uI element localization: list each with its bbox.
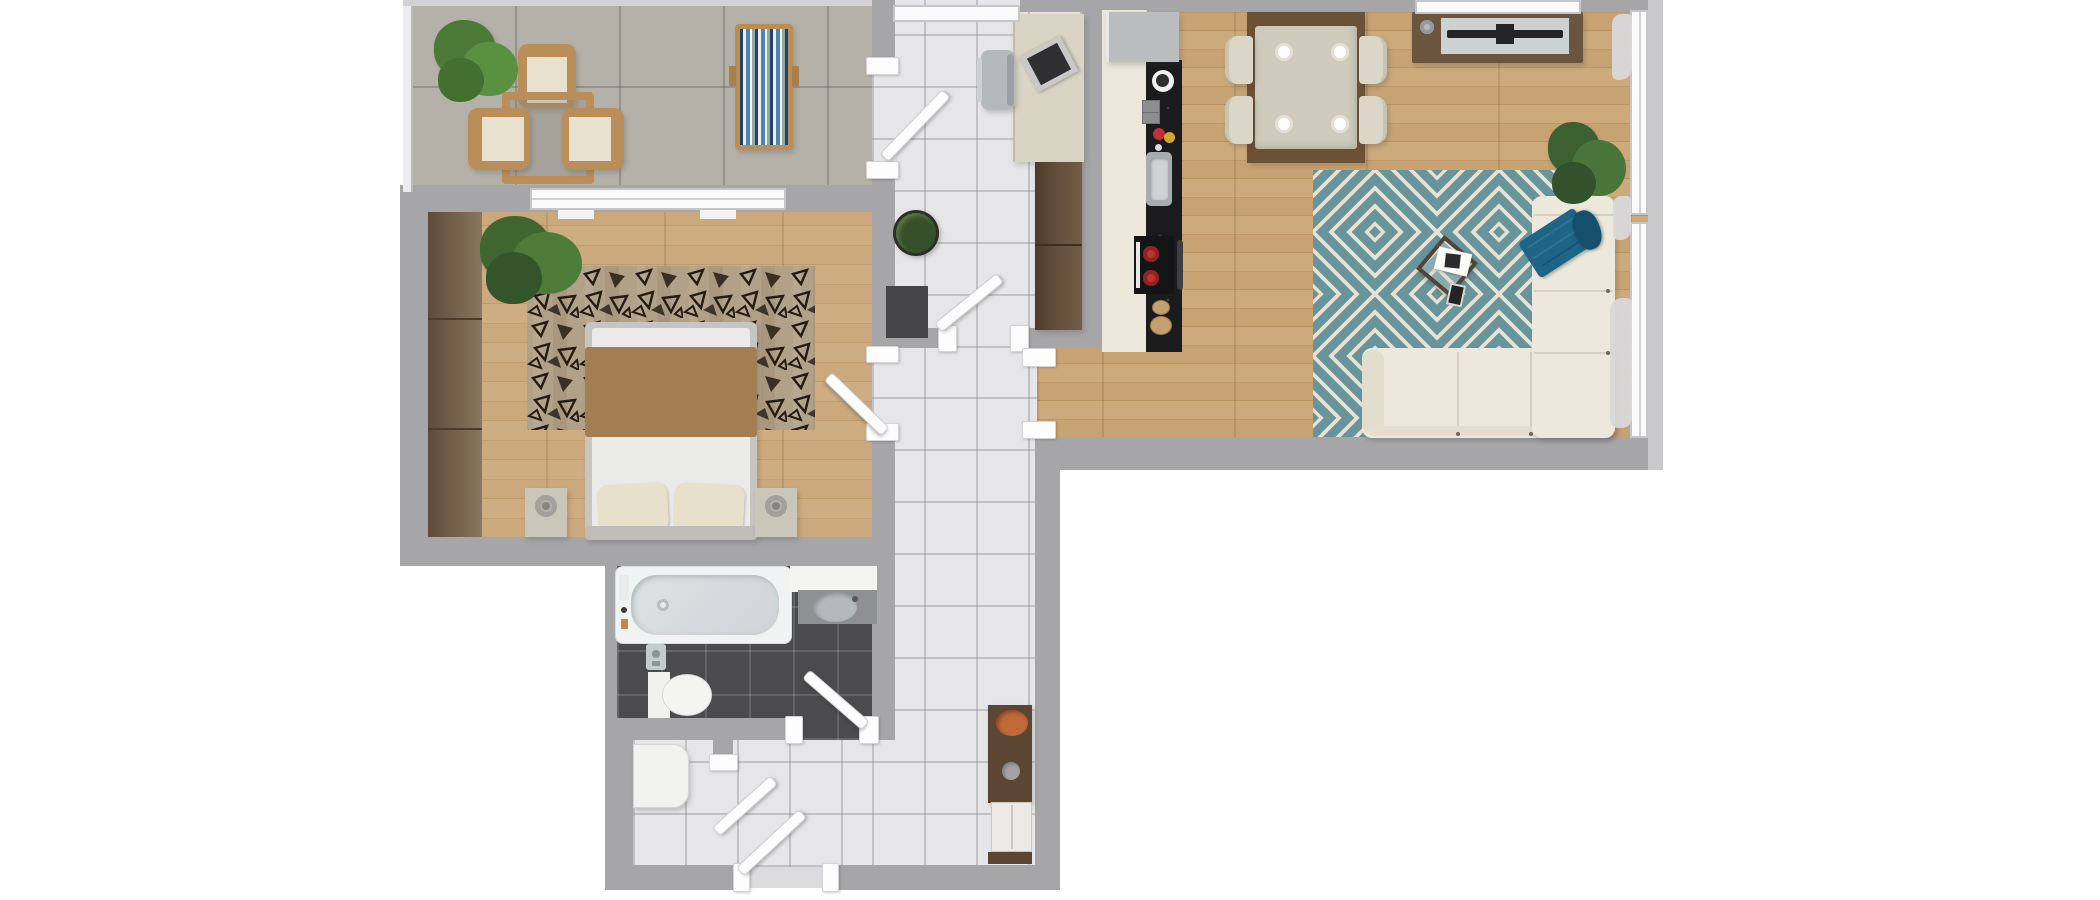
dining-chair: [1225, 36, 1253, 84]
toilet-bowl: [662, 674, 712, 716]
living-doorway-post: [1022, 421, 1056, 439]
bedroom-plant-leaves: [486, 252, 542, 304]
sofa-armrest: [1362, 350, 1384, 434]
wardrobe-divider: [428, 428, 482, 430]
bathtub-drain: [657, 599, 669, 611]
washing-machine: [633, 744, 689, 808]
wall-kitchen: [1082, 0, 1102, 348]
bedroom-curtain-tab: [700, 210, 736, 219]
cutting-board: [1150, 316, 1172, 335]
hall-console-shelf: [988, 852, 1032, 864]
laundry-door-post: [709, 754, 738, 771]
wall-outer-right: [1648, 0, 1663, 470]
lemon: [1164, 132, 1175, 143]
dining-chair: [1225, 96, 1253, 144]
vanity-counter-top: [790, 566, 877, 592]
spice-jars: [1142, 100, 1160, 124]
wall-living-bottom: [1035, 437, 1663, 470]
wardrobe: [428, 212, 482, 537]
door-knob-dish: [1002, 762, 1020, 780]
bathtub-basin: [631, 575, 779, 635]
cutting-board: [1152, 300, 1170, 315]
curtain: [1610, 298, 1632, 428]
wall-bedroom-bottom: [400, 537, 895, 566]
oven-handle: [1177, 240, 1183, 290]
wall-taps: [646, 644, 666, 670]
doormat: [886, 286, 928, 338]
bed-blanket: [585, 347, 757, 437]
balcony-railing-left: [403, 0, 413, 192]
living-doorway-post: [1022, 348, 1056, 367]
wall-hall-stub-right: [1024, 328, 1102, 348]
sun-lounger: [735, 24, 793, 150]
wall-hall-right: [1035, 438, 1060, 890]
balcony-plant-leaves: [438, 58, 484, 102]
vanity-counter: [798, 590, 877, 624]
refrigerator: [1106, 12, 1179, 62]
table-lamp-left: [535, 495, 557, 517]
tv-screen: [1496, 24, 1514, 44]
burner: [1143, 270, 1159, 286]
kitchen-sink: [1146, 152, 1172, 206]
basin-tap: [852, 596, 858, 602]
bedroom-door-post: [866, 346, 899, 363]
living-top-window: [1415, 0, 1581, 14]
bathtub: [615, 566, 792, 644]
plate: [1331, 43, 1349, 61]
plate: [1275, 43, 1293, 61]
plate: [1331, 115, 1349, 133]
bath-faucet: [619, 575, 629, 601]
balcony-railing-top: [403, 0, 872, 6]
curtain: [1612, 14, 1632, 80]
hall-plant: [896, 213, 936, 253]
cooktop: [1134, 236, 1174, 294]
bedroom-curtain-tab: [558, 210, 594, 219]
table-lamp-right: [765, 495, 787, 517]
entrance-door-post: [822, 863, 839, 892]
headboard: [585, 526, 757, 540]
entrance-gap: [747, 867, 823, 888]
speaker: [1420, 20, 1434, 34]
balcony-door-post: [866, 57, 899, 75]
sink-faucet: [1155, 144, 1162, 151]
curtain: [1613, 196, 1631, 240]
double-bed: [585, 322, 757, 540]
balcony-chair-right: [562, 108, 624, 170]
bedroom-window: [530, 188, 786, 210]
hall-bench: [991, 802, 1032, 852]
plate: [1275, 115, 1293, 133]
living-right-window-upper: [1630, 10, 1648, 215]
hall-tall-cabinet: [1035, 162, 1082, 330]
entry-window: [893, 5, 1020, 22]
wall-bedroom-left: [400, 185, 428, 566]
lounger-armrest: [729, 66, 736, 86]
floor-plan-canvas: [0, 0, 2100, 900]
chair-cushion: [482, 117, 524, 161]
balcony-door-post: [866, 161, 899, 179]
wardrobe-divider: [428, 318, 482, 320]
wall-bath-bottom: [605, 718, 801, 740]
desk: [1013, 14, 1084, 162]
bathroom-door-post: [785, 716, 803, 744]
living-plant-leaves: [1552, 162, 1596, 204]
desk-chair: [981, 50, 1015, 110]
chair-cushion: [569, 117, 611, 161]
cooktop-controls: [1136, 242, 1140, 288]
wall-bottom-left: [605, 865, 747, 890]
paper-towel-holder: [1152, 70, 1174, 92]
washbasin: [813, 592, 857, 622]
decorative-bowl: [996, 710, 1028, 736]
dining-chair: [1359, 96, 1387, 144]
burner: [1143, 246, 1159, 262]
wall-bottom-right: [823, 865, 1060, 890]
lounger-armrest: [792, 66, 799, 86]
balcony-chair-left: [468, 108, 530, 170]
dining-chair: [1359, 36, 1387, 84]
living-right-window-lower: [1630, 222, 1648, 438]
